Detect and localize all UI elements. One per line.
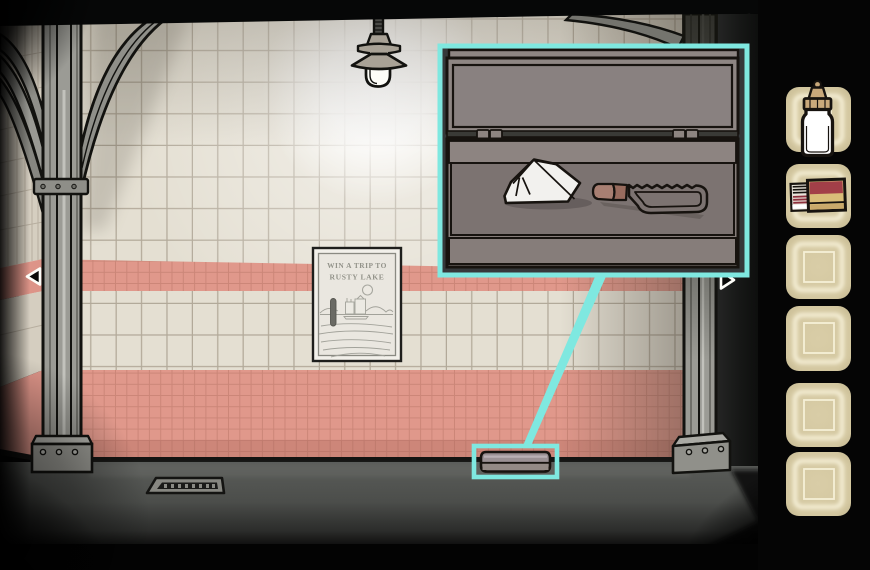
svg-text:RUSTY LAKE: RUSTY LAKE (330, 273, 385, 282)
svg-text:WIN A TRIP TO: WIN A TRIP TO (327, 261, 387, 270)
